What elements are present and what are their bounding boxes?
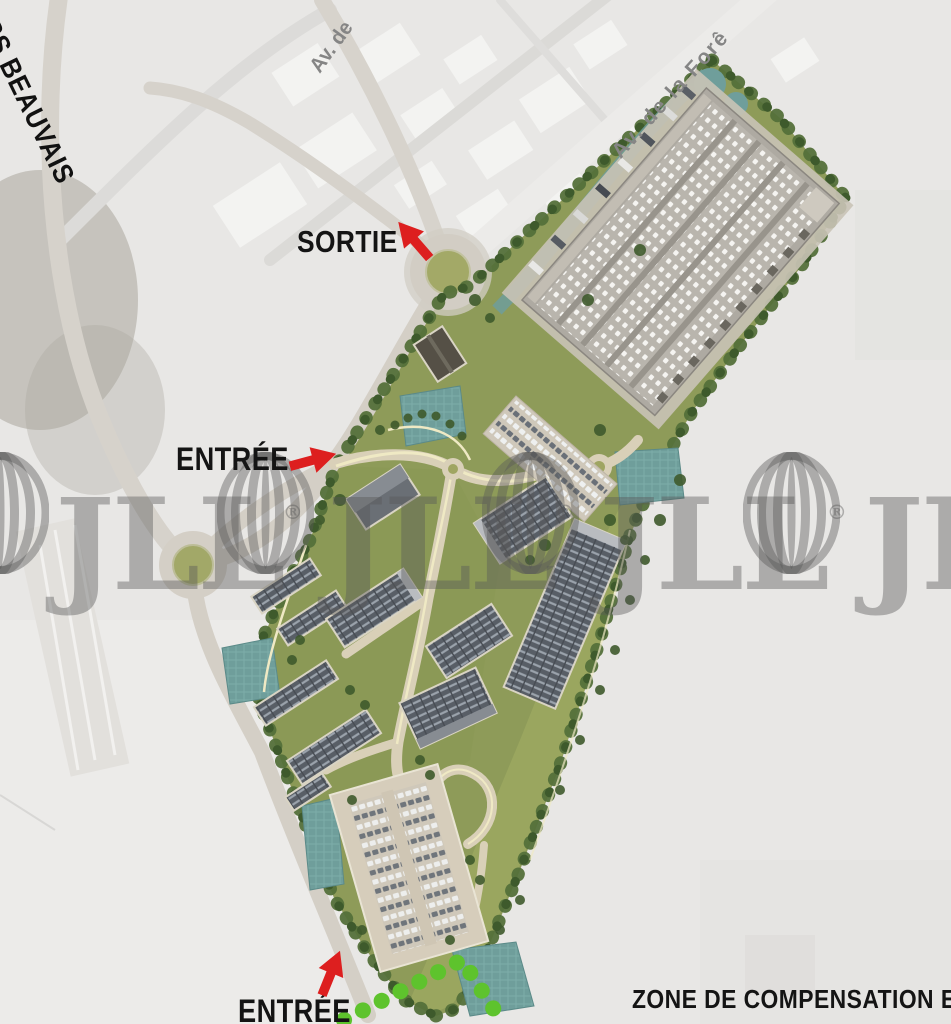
sortie-label: SORTIE	[297, 226, 398, 257]
entree-mid-label: ENTRÉE	[176, 443, 289, 475]
roundabout-west	[159, 531, 227, 599]
zone-compensation-label: ZONE DE COMPENSATION E	[632, 986, 951, 1012]
site-plan-map: RS BEAUVAIS Av. de Av. de la Forê JLL® J…	[0, 0, 951, 1024]
site-plan-svg	[0, 0, 951, 1024]
